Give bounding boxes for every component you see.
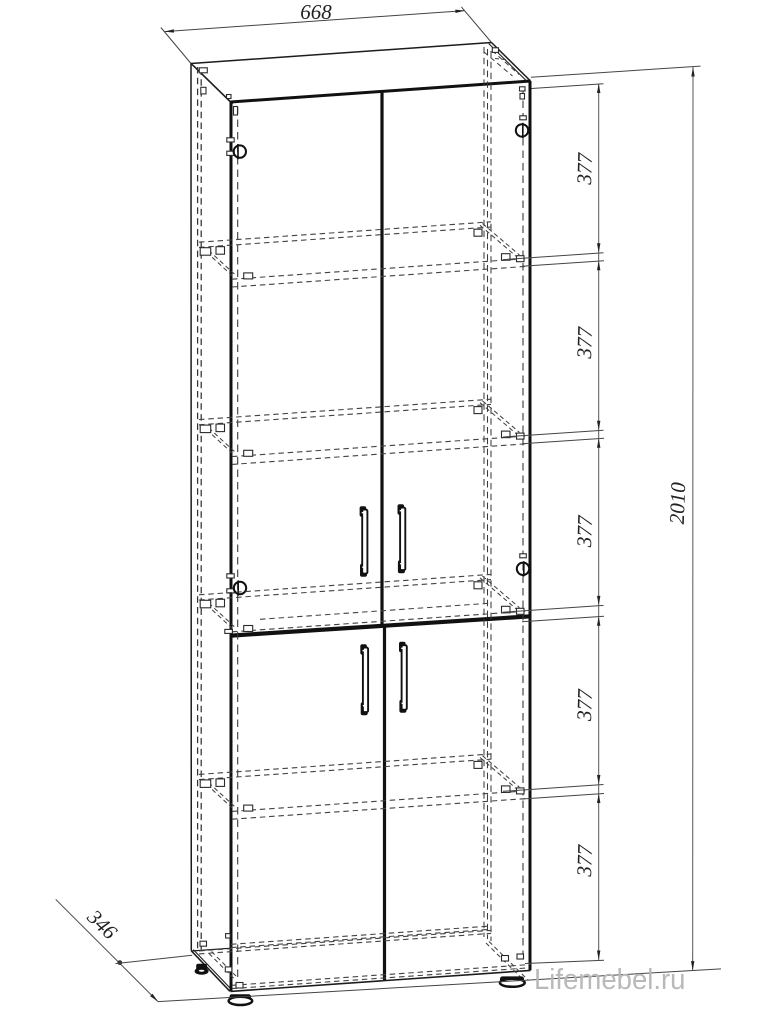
svg-text:Lifemebel.ru: Lifemebel.ru — [534, 964, 686, 996]
svg-text:2010: 2010 — [665, 481, 690, 524]
svg-text:377: 377 — [572, 687, 597, 722]
svg-text:377: 377 — [572, 514, 597, 549]
svg-text:377: 377 — [572, 843, 597, 878]
svg-text:668: 668 — [300, 0, 332, 24]
svg-text:377: 377 — [572, 151, 597, 186]
svg-text:377: 377 — [572, 325, 597, 360]
